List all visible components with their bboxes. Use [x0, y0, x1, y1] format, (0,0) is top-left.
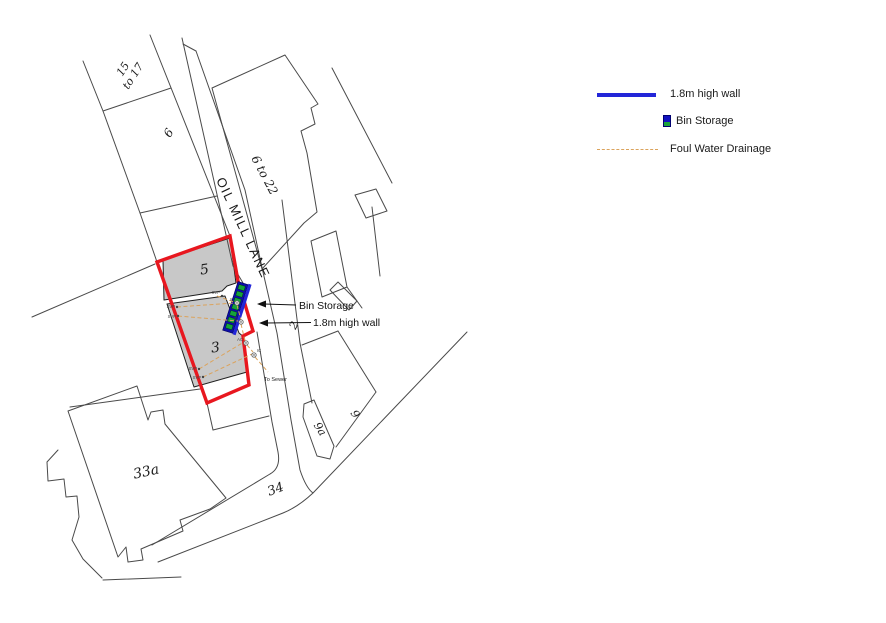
ic-label: IC — [230, 297, 234, 302]
svp-label: SVP — [168, 314, 177, 319]
to-sewer-label: To Sewer — [264, 377, 287, 383]
legend-label-bin: Bin Storage — [676, 115, 733, 127]
street-label-34: 34 — [265, 480, 286, 500]
drainage-line-icon — [597, 149, 658, 150]
bin-storage-arrow-line — [264, 304, 296, 305]
parcel-label-9: 9 — [348, 408, 363, 421]
svp-label: SVP — [193, 375, 202, 380]
parcel-line — [338, 331, 376, 392]
inspection-chamber-dot — [236, 302, 237, 303]
outbuilding-outline — [355, 189, 387, 218]
svp-dot-icon — [176, 306, 178, 308]
svp-label: SVP — [189, 366, 198, 371]
parcel-line — [32, 264, 155, 317]
annotations: Bin Storage 1.8m high wall To Sewer — [257, 300, 380, 383]
building-2-outline — [311, 231, 347, 297]
svp-dot-icon — [177, 315, 179, 317]
arrow-icon — [259, 320, 268, 327]
bin-icon-bottom — [664, 122, 670, 126]
legend: 1.8m high wall Bin Storage Foul Water Dr… — [590, 80, 820, 170]
parcel-line — [140, 196, 217, 213]
arrow-icon — [257, 301, 266, 308]
svp-dot-icon — [198, 368, 200, 370]
legend-label-drainage: Foul Water Drainage — [670, 143, 771, 155]
rear-diagonal-line — [332, 68, 392, 183]
parcel-line — [207, 403, 213, 430]
ic-label: IC — [257, 348, 261, 353]
ac-label: AC — [237, 337, 243, 342]
legend-label-wall: 1.8m high wall — [670, 88, 740, 100]
parcel-label-6: 6 — [161, 126, 177, 140]
high-wall-arrow-line — [266, 323, 311, 324]
access-chamber-dot — [245, 342, 246, 343]
ic-label: IC — [234, 316, 238, 321]
svp-label: SVP — [212, 290, 221, 295]
parcel-label-6to22: 6 to 22 — [248, 153, 280, 197]
parcel-label-33a: 33a — [132, 462, 161, 483]
parcel-label-9a: 9a — [311, 420, 329, 438]
wall-line-icon — [597, 93, 656, 97]
bin-storage-annotation: Bin Storage — [299, 300, 354, 312]
street-line — [103, 577, 181, 580]
legend-item-bin: Bin Storage — [590, 115, 820, 131]
svp-dot-icon — [221, 295, 223, 297]
parcel-line — [83, 61, 103, 111]
svp-label: SVP — [167, 304, 176, 309]
stepped-outbuilding-line — [47, 450, 102, 578]
bin-storage-icon — [663, 115, 671, 127]
drainage-line — [247, 345, 253, 352]
parcel-line — [213, 416, 269, 430]
legend-item-drainage: Foul Water Drainage — [590, 143, 820, 159]
parcel-line — [140, 213, 157, 262]
svp-dot-icon — [202, 376, 204, 378]
parcel-frontage-line — [150, 35, 230, 236]
site-plan-page: SVP SVP SVP SVP SVP IC IC AC IC 15 to 17… — [0, 0, 886, 623]
parcel-line — [302, 331, 338, 345]
parcel-label-2: 2 — [286, 319, 301, 332]
parcel-line — [336, 392, 376, 447]
legend-item-wall: 1.8m high wall — [590, 88, 820, 104]
parcel-line — [103, 88, 171, 111]
parcel-line — [70, 389, 200, 407]
map-linework — [32, 35, 467, 580]
inspection-chamber-dot — [240, 321, 241, 322]
inspection-chamber-dot — [253, 354, 254, 355]
high-wall-annotation: 1.8m high wall — [313, 317, 380, 329]
rear-line — [372, 207, 380, 276]
parcel-line — [103, 111, 140, 213]
